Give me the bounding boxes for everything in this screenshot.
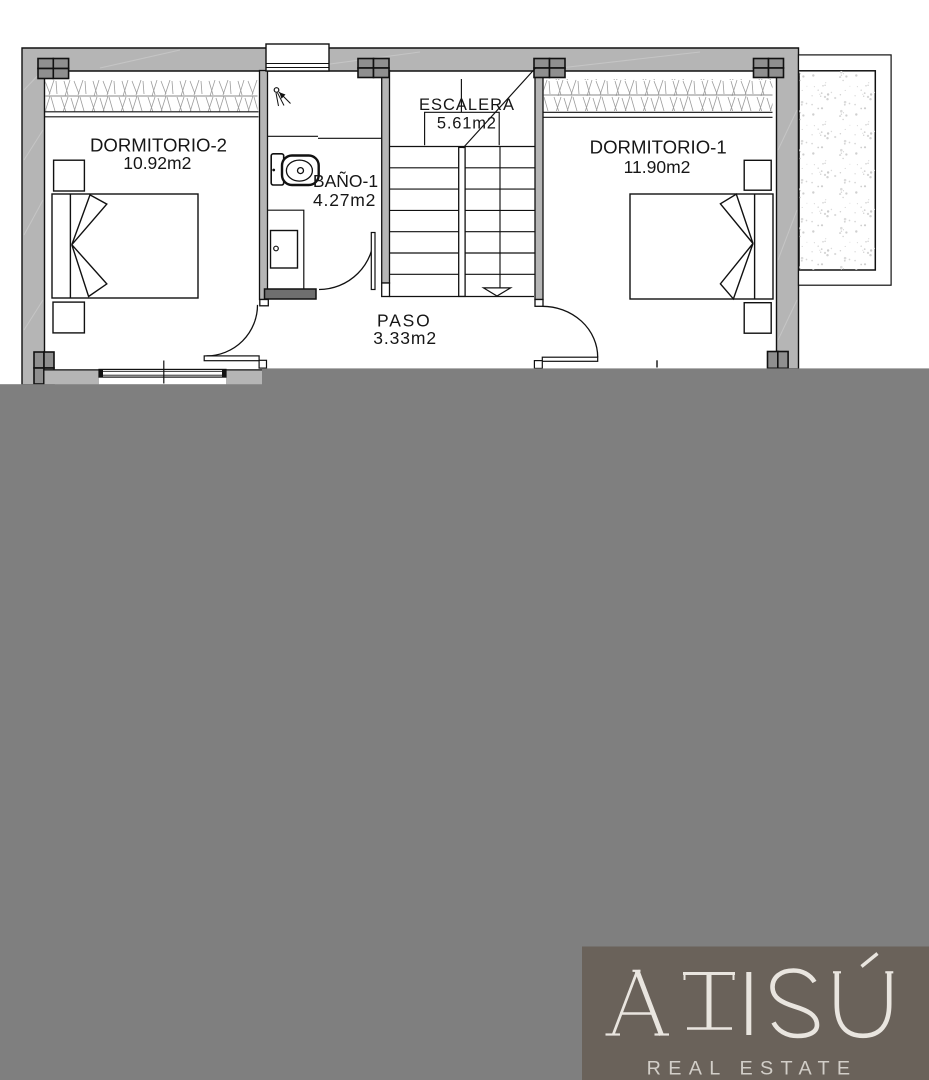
svg-text:ESCALERA: ESCALERA: [419, 96, 515, 114]
svg-text:DORMITORIO-2: DORMITORIO-2: [90, 134, 227, 155]
svg-text:DORMITORIO-1: DORMITORIO-1: [590, 137, 727, 158]
svg-text:BAÑO-1: BAÑO-1: [313, 170, 378, 191]
svg-text:11.90m2: 11.90m2: [624, 157, 691, 177]
svg-text:4.27m2: 4.27m2: [313, 190, 376, 210]
svg-text:REAL ESTATE: REAL ESTATE: [647, 1058, 858, 1080]
svg-text:3.33m2: 3.33m2: [373, 328, 437, 348]
svg-text:10.92m2: 10.92m2: [123, 153, 191, 173]
svg-text:5.61m2: 5.61m2: [437, 114, 497, 132]
